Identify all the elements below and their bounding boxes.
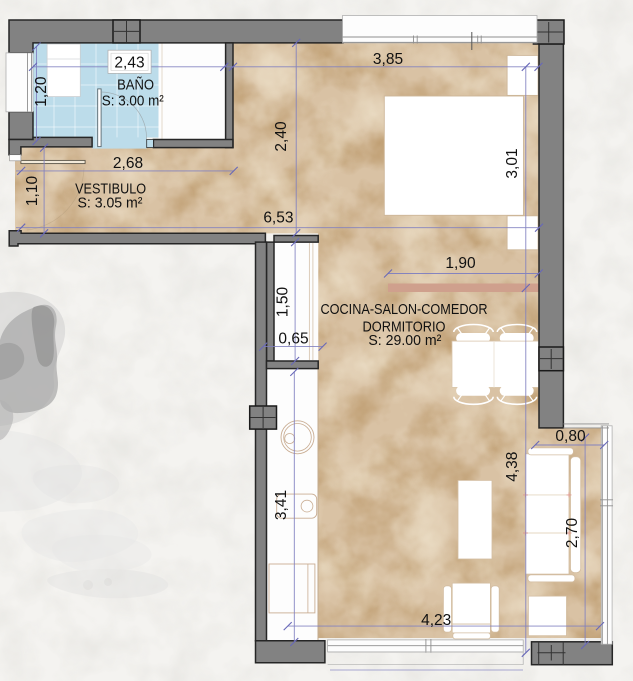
svg-text:COCINA-SALON-COMEDOR: COCINA-SALON-COMEDOR — [321, 301, 488, 318]
svg-text:3,01: 3,01 — [504, 148, 521, 178]
svg-text:4,23: 4,23 — [421, 612, 451, 629]
svg-text:S: 29.00 m²: S: 29.00 m² — [368, 332, 441, 349]
svg-text:BAÑO: BAÑO — [117, 77, 154, 94]
svg-text:0,65: 0,65 — [278, 331, 308, 348]
svg-text:6,53: 6,53 — [263, 210, 293, 227]
svg-text:1,50: 1,50 — [275, 287, 292, 318]
svg-text:1,10: 1,10 — [24, 176, 41, 207]
svg-text:4,38: 4,38 — [504, 452, 521, 482]
svg-text:1,20: 1,20 — [33, 76, 50, 107]
svg-text:S: 3.05 m²: S: 3.05 m² — [78, 195, 143, 212]
svg-text:2,43: 2,43 — [114, 55, 144, 72]
svg-text:3,41: 3,41 — [273, 490, 290, 520]
svg-text:S: 3.00 m²: S: 3.00 m² — [102, 93, 164, 110]
svg-text:1,90: 1,90 — [445, 255, 476, 272]
svg-text:2,70: 2,70 — [564, 518, 581, 549]
svg-text:2,68: 2,68 — [113, 155, 143, 172]
svg-text:3,85: 3,85 — [373, 51, 403, 68]
svg-text:2,40: 2,40 — [273, 121, 290, 152]
svg-text:0,80: 0,80 — [555, 428, 586, 445]
